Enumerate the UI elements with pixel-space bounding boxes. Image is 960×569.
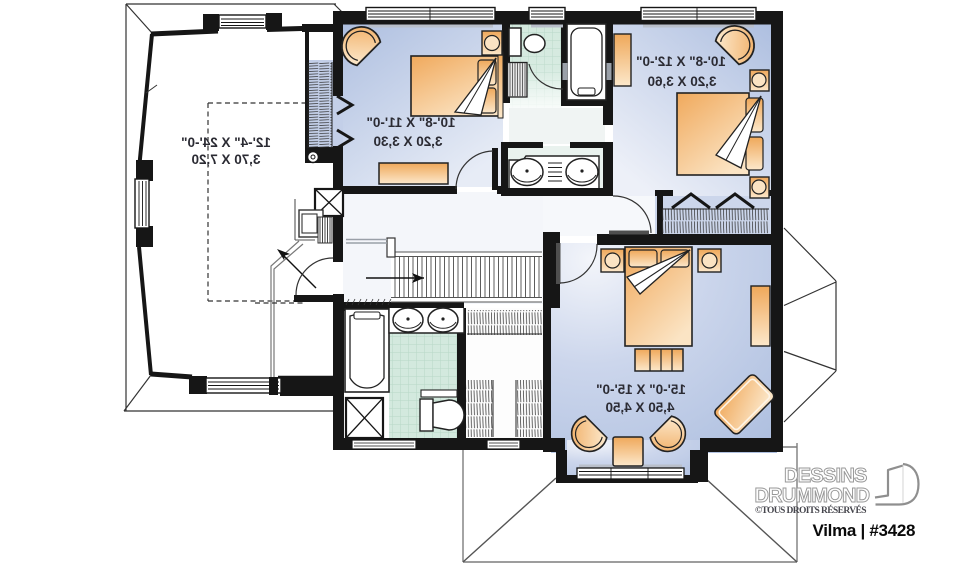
svg-text:4,50 X 4,50: 4,50 X 4,50 — [605, 400, 674, 415]
svg-text:©TOUS DROITS RÉSERVÉS: ©TOUS DROITS RÉSERVÉS — [755, 504, 867, 516]
svg-text:3,20 X 3,60: 3,20 X 3,60 — [647, 74, 716, 89]
svg-text:DRUMMOND: DRUMMOND — [755, 485, 872, 507]
svg-text:Vilma | #3428: Vilma | #3428 — [813, 521, 916, 540]
svg-text:10'-8" X 11'-0": 10'-8" X 11'-0" — [366, 115, 455, 130]
svg-text:10'-8" X 12'-0": 10'-8" X 12'-0" — [636, 54, 726, 69]
svg-text:3,20 X 3,30: 3,20 X 3,30 — [373, 134, 442, 149]
svg-text:12'-4" X 24'-0": 12'-4" X 24'-0" — [181, 135, 271, 150]
svg-text:3,70 X 7,20: 3,70 X 7,20 — [191, 152, 260, 167]
svg-text:15'-0" X 15'-0": 15'-0" X 15'-0" — [596, 382, 686, 397]
svg-text:DESSINS: DESSINS — [784, 465, 870, 487]
